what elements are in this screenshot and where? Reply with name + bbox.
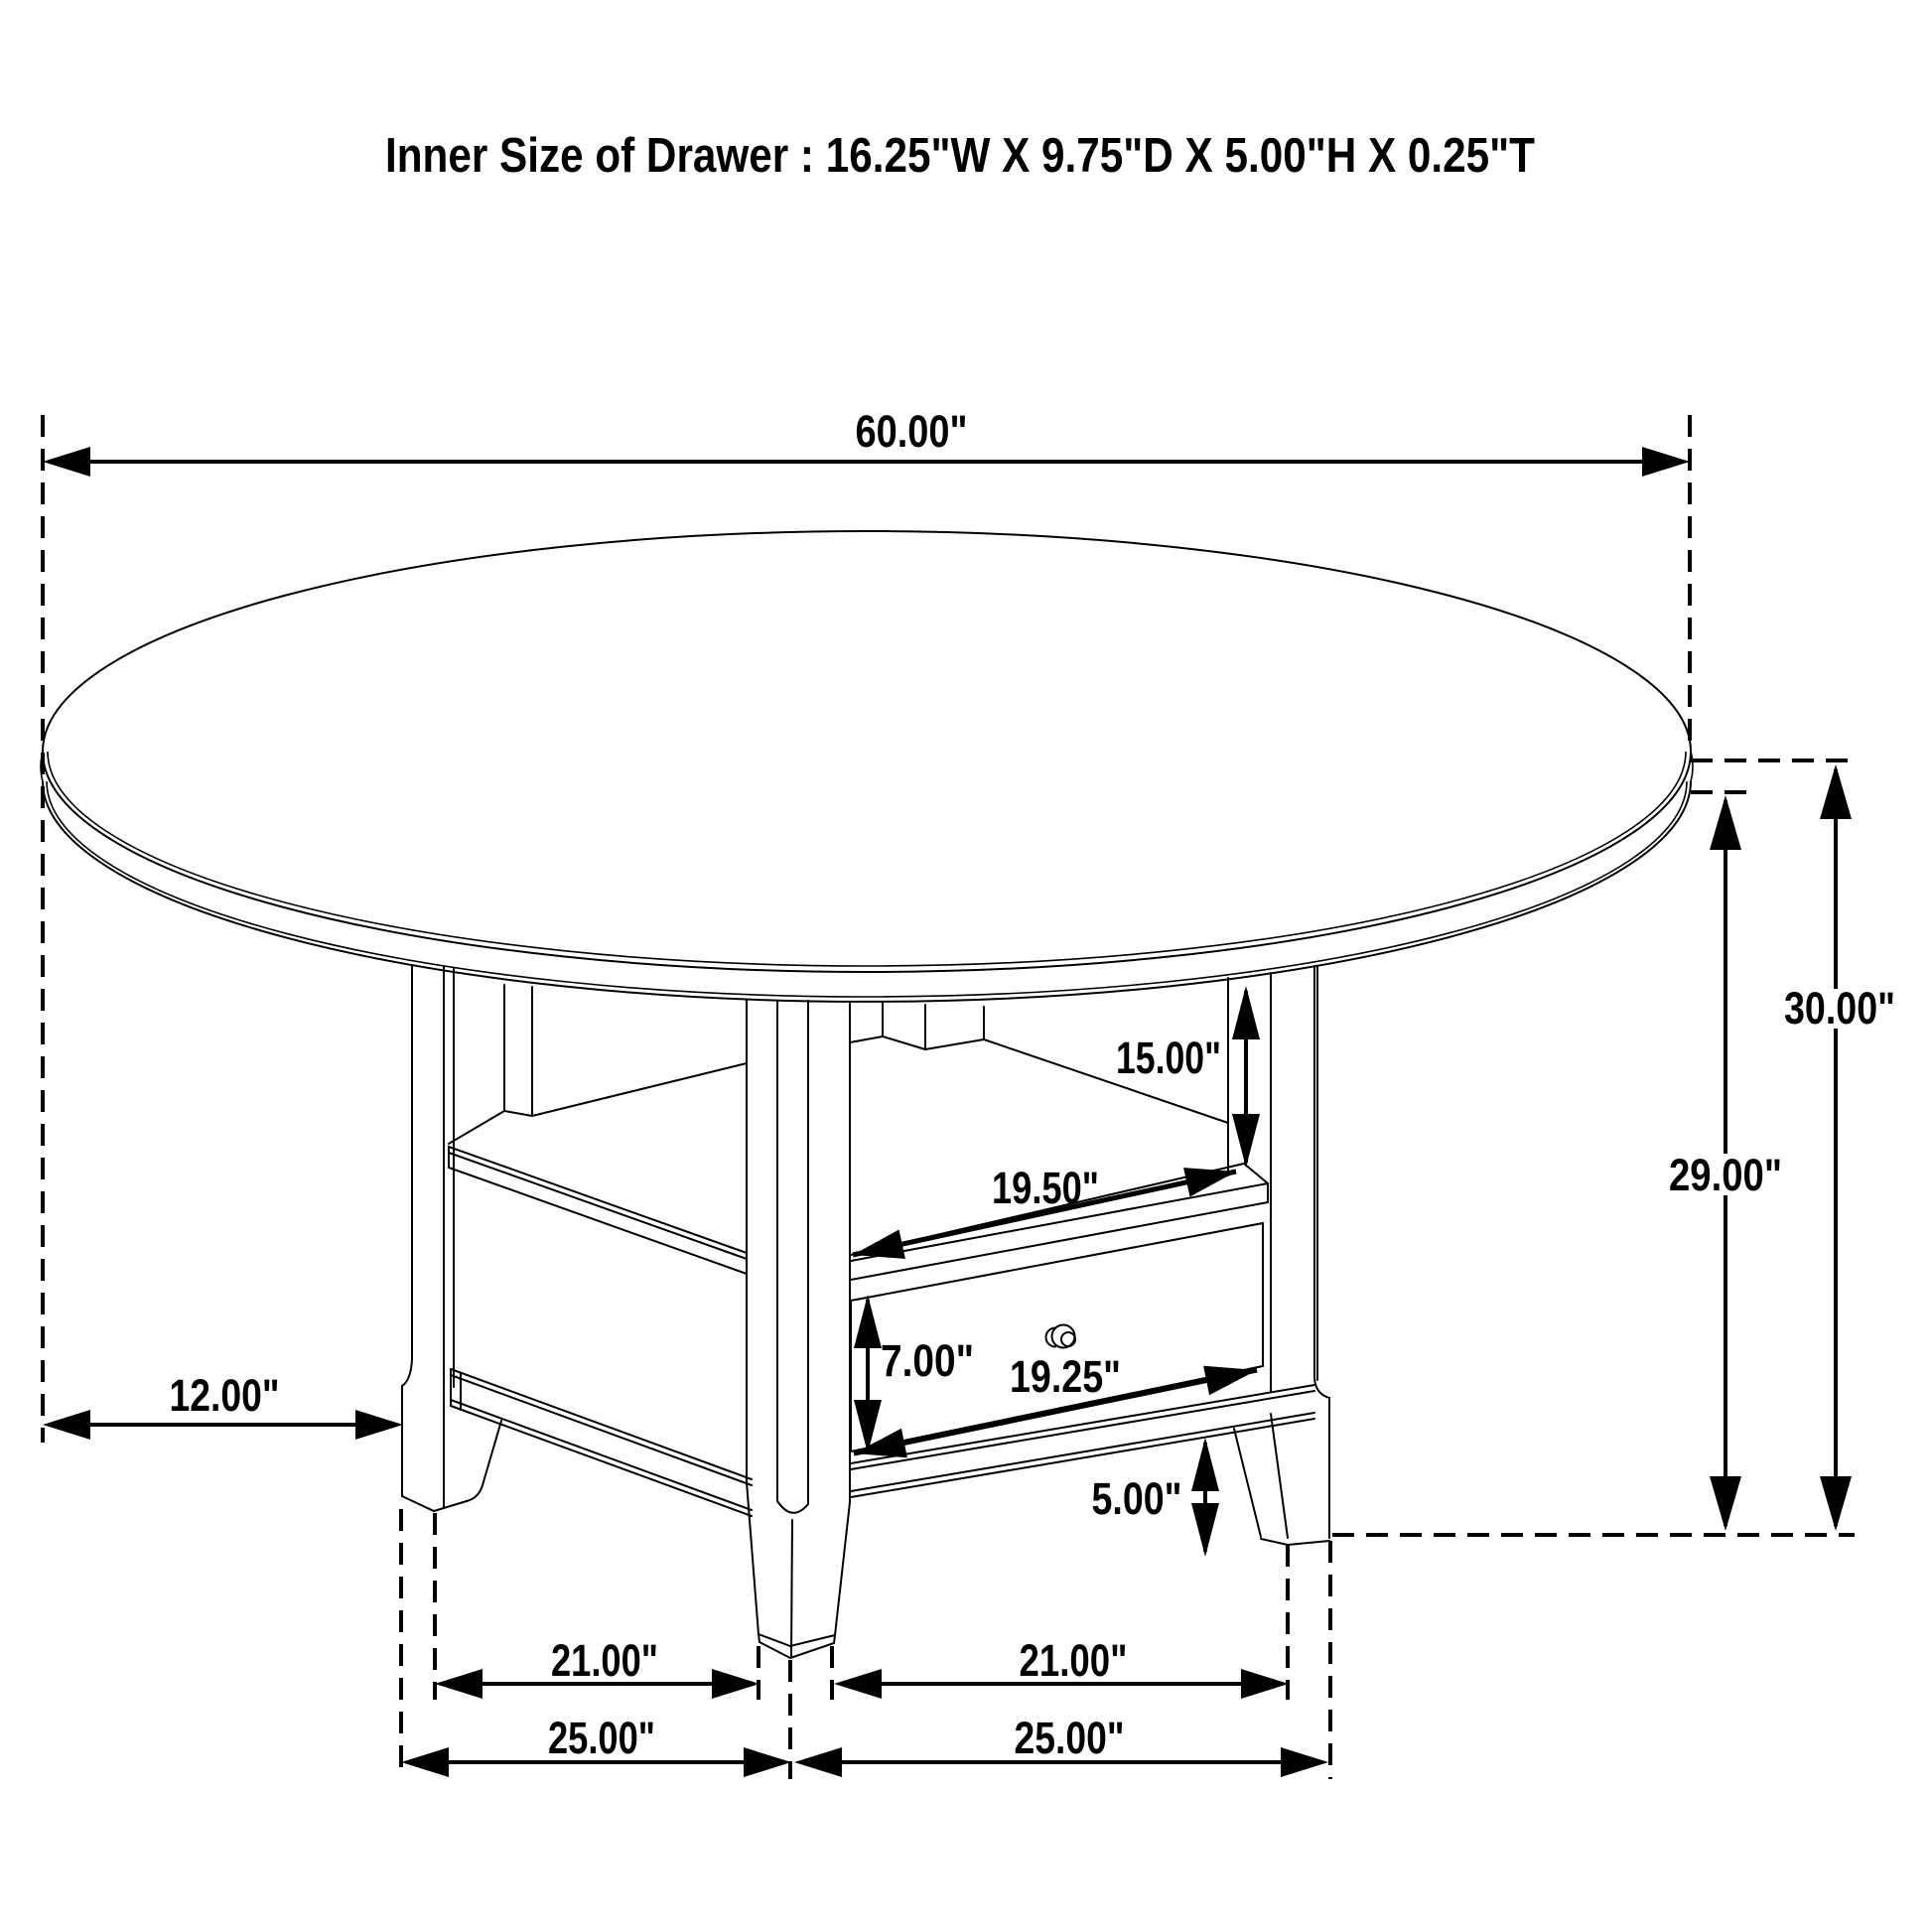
- svg-text:21.00": 21.00": [1020, 1635, 1128, 1686]
- svg-text:5.00": 5.00": [1092, 1473, 1182, 1524]
- svg-text:30.00": 30.00": [1784, 983, 1895, 1034]
- svg-text:7.00": 7.00": [881, 1335, 974, 1386]
- svg-text:12.00": 12.00": [170, 1370, 280, 1421]
- svg-text:25.00": 25.00": [548, 1713, 655, 1763]
- svg-text:Inner Size of Drawer : 16.25"W: Inner Size of Drawer : 16.25"W X 9.75"D …: [385, 129, 1535, 183]
- svg-text:19.25": 19.25": [1010, 1351, 1121, 1402]
- svg-text:29.00": 29.00": [1669, 1150, 1782, 1200]
- svg-text:60.00": 60.00": [856, 406, 968, 457]
- svg-text:19.50": 19.50": [992, 1163, 1099, 1213]
- svg-text:15.00": 15.00": [1116, 1033, 1221, 1083]
- svg-text:21.00": 21.00": [551, 1635, 658, 1686]
- svg-text:25.00": 25.00": [1015, 1713, 1125, 1763]
